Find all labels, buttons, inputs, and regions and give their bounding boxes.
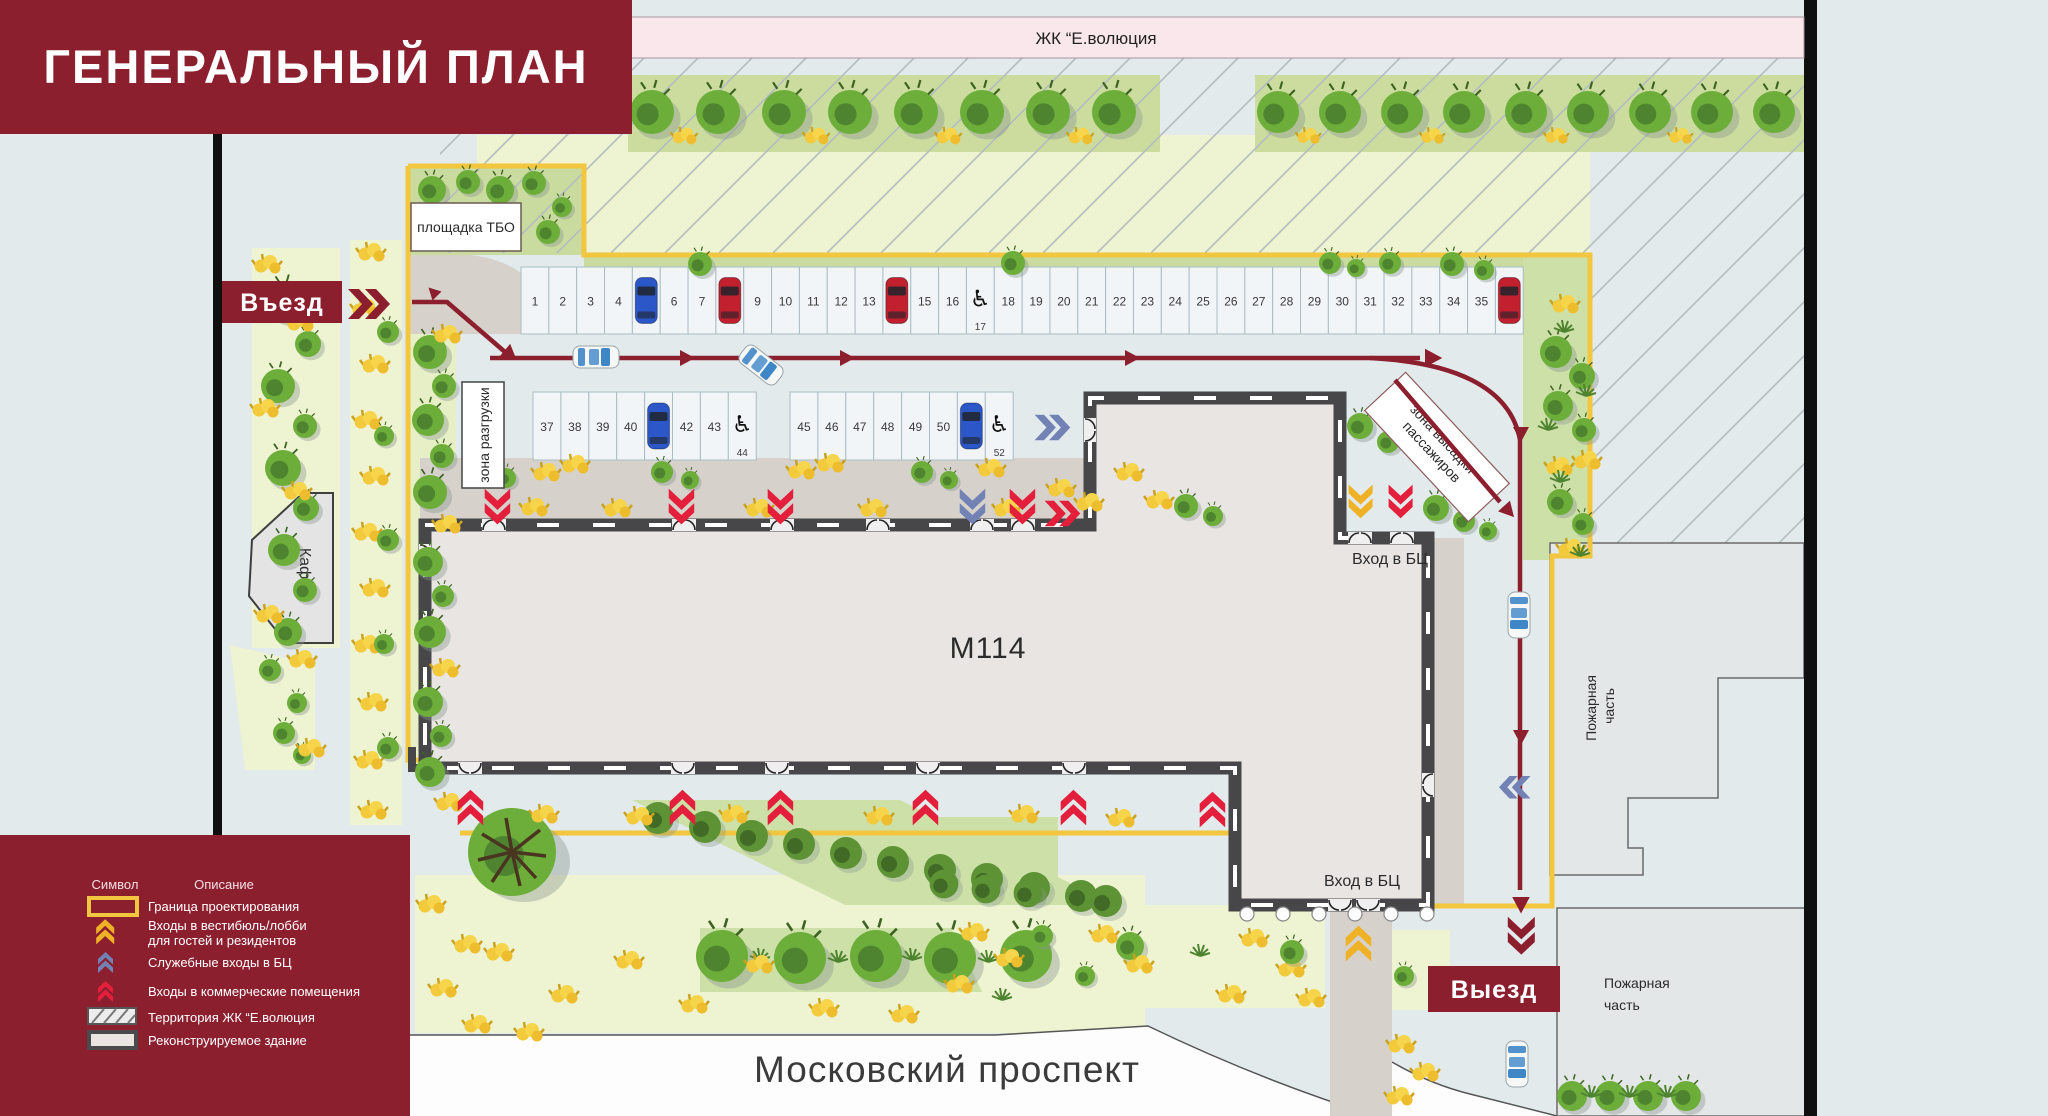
site-border-right: [1804, 0, 1817, 1116]
legend-symbol-header: Символ: [92, 877, 139, 892]
parking-slot-number: 20: [1057, 295, 1071, 309]
parking-slot-number: 34: [1447, 295, 1461, 309]
residential-strip-label: ЖК “Е.волюция: [1035, 29, 1156, 48]
parking-row-2a: 373839404243♿44: [533, 392, 756, 460]
parking-slot-number: 16: [946, 295, 960, 309]
parking-slot-number: 13: [862, 295, 876, 309]
parking-slot-number: 25: [1196, 295, 1210, 309]
page-title: ГЕНЕРАЛЬНЫЙ ПЛАН: [43, 40, 588, 93]
parking-slot-number: 21: [1085, 295, 1099, 309]
parking-slot-number: 40: [624, 420, 638, 434]
exit-sign: Выезд: [1428, 966, 1560, 1012]
legend: Символ Описание Граница проектирования В…: [0, 835, 410, 1116]
parking-slot-number: 22: [1113, 295, 1127, 309]
parking-slot-number: 46: [825, 420, 839, 434]
legend-item-territory: Территория ЖК “Е.волюция: [148, 1010, 315, 1025]
site-plan-map: Пожарная часть Пожарная часть Кафе 12346…: [0, 0, 2048, 1116]
parking-slot-number: 15: [918, 295, 932, 309]
parking-slot-number: 7: [699, 295, 706, 309]
general-plan-page: Пожарная часть Пожарная часть Кафе 12346…: [0, 0, 2048, 1116]
legend-item-commercial: Входы в коммерческие помещения: [148, 984, 360, 999]
parking-slot-number: 49: [909, 420, 923, 434]
parked-car-icon: [719, 278, 741, 324]
parking-slot-number: 26: [1224, 295, 1238, 309]
parking-slot-number: 43: [708, 420, 722, 434]
parking-slot-number: 11: [807, 295, 820, 309]
exit-label: Выезд: [1451, 976, 1538, 1004]
avenue-label: Московский проспект: [754, 1049, 1140, 1090]
legend-hatch-swatch: [88, 1008, 136, 1024]
building-label: М114: [950, 632, 1027, 665]
parking-slot-number: 42: [680, 420, 694, 434]
parking-slot-number: 48: [881, 420, 895, 434]
parking-row-2b: 454647484950♿52: [790, 392, 1013, 460]
parking-slot-number: 9: [754, 295, 761, 309]
bc-entrance-south-label: Вход в БЦ: [1324, 873, 1400, 890]
legend-item-service: Служебные входы в БЦ: [148, 955, 292, 970]
parking-slot-number: 1: [532, 295, 539, 309]
parking-slot-number: 10: [779, 295, 793, 309]
bc-entrance-north-label: Вход в БЦ: [1352, 551, 1428, 568]
parking-slot-number: 47: [853, 420, 867, 434]
parking-slot-number: 24: [1169, 295, 1183, 309]
disabled-parking-icon: ♿: [970, 287, 991, 313]
parking-slot-number: 50: [937, 420, 951, 434]
parking-slot-number: 45: [797, 420, 811, 434]
residential-strip: ЖК “Е.волюция: [628, 17, 1804, 58]
parking-slot-number: 4: [615, 295, 622, 309]
parking-slot-number: 12: [834, 295, 848, 309]
parking-slot-number: 31: [1363, 295, 1377, 309]
parked-car-icon: [648, 403, 670, 449]
parking-slot-number: 52: [994, 448, 1006, 459]
parking-slot-number: 33: [1419, 295, 1433, 309]
parking-slot-number: 29: [1308, 295, 1322, 309]
legend-item-building: Реконструируемое здание: [148, 1033, 307, 1048]
parked-car-icon: [960, 403, 982, 449]
parking-slot-number: 18: [1002, 295, 1016, 309]
disabled-parking-icon: ♿: [732, 412, 753, 438]
parking-slot-number: 17: [975, 322, 987, 333]
tbo-label: площадка ТБО: [417, 219, 515, 235]
title-banner: ГЕНЕРАЛЬНЫЙ ПЛАН: [0, 0, 632, 134]
parking-slot-number: 44: [737, 448, 749, 459]
parked-car-icon: [635, 278, 657, 324]
parking-slot-number: 35: [1475, 295, 1489, 309]
disabled-parking-icon: ♿: [989, 412, 1010, 438]
parking-slot-number: 30: [1336, 295, 1350, 309]
parking-slot-number: 3: [587, 295, 594, 309]
parking-slot-number: 27: [1252, 295, 1266, 309]
parking-slot-number: 19: [1029, 295, 1043, 309]
parking-slot-number: 23: [1141, 295, 1155, 309]
legend-item-boundary: Граница проектирования: [148, 899, 299, 914]
unloading-label: зона разгрузки: [476, 387, 492, 482]
parking-slot-number: 37: [540, 420, 554, 434]
parking-slot-number: 2: [559, 295, 566, 309]
fire-station-right-label: Пожарная: [1583, 675, 1599, 741]
parking-slot-number: 6: [671, 295, 678, 309]
unloading-label-box: зона разгрузки: [462, 382, 504, 488]
legend-building-swatch: [89, 1032, 136, 1048]
svg-text:для гостей и резидентов: для гостей и резидентов: [148, 933, 296, 948]
parking-slot-number: 32: [1391, 295, 1405, 309]
entry-label: Въезд: [240, 289, 323, 317]
parking-row-1: 1234679101112131516♿17181920212223242526…: [521, 267, 1523, 334]
parking-slot-number: 39: [596, 420, 610, 434]
parking-slot-number: 38: [568, 420, 582, 434]
legend-item-lobby: Входы в вестибюль/лобби: [148, 918, 307, 933]
parked-car-icon: [1498, 278, 1520, 324]
site-border-left: [213, 134, 222, 835]
legend-description-header: Описание: [194, 877, 254, 892]
parking-slot-number: 28: [1280, 295, 1294, 309]
parked-car-icon: [886, 278, 908, 324]
tbo-label-box: площадка ТБО: [411, 203, 521, 251]
